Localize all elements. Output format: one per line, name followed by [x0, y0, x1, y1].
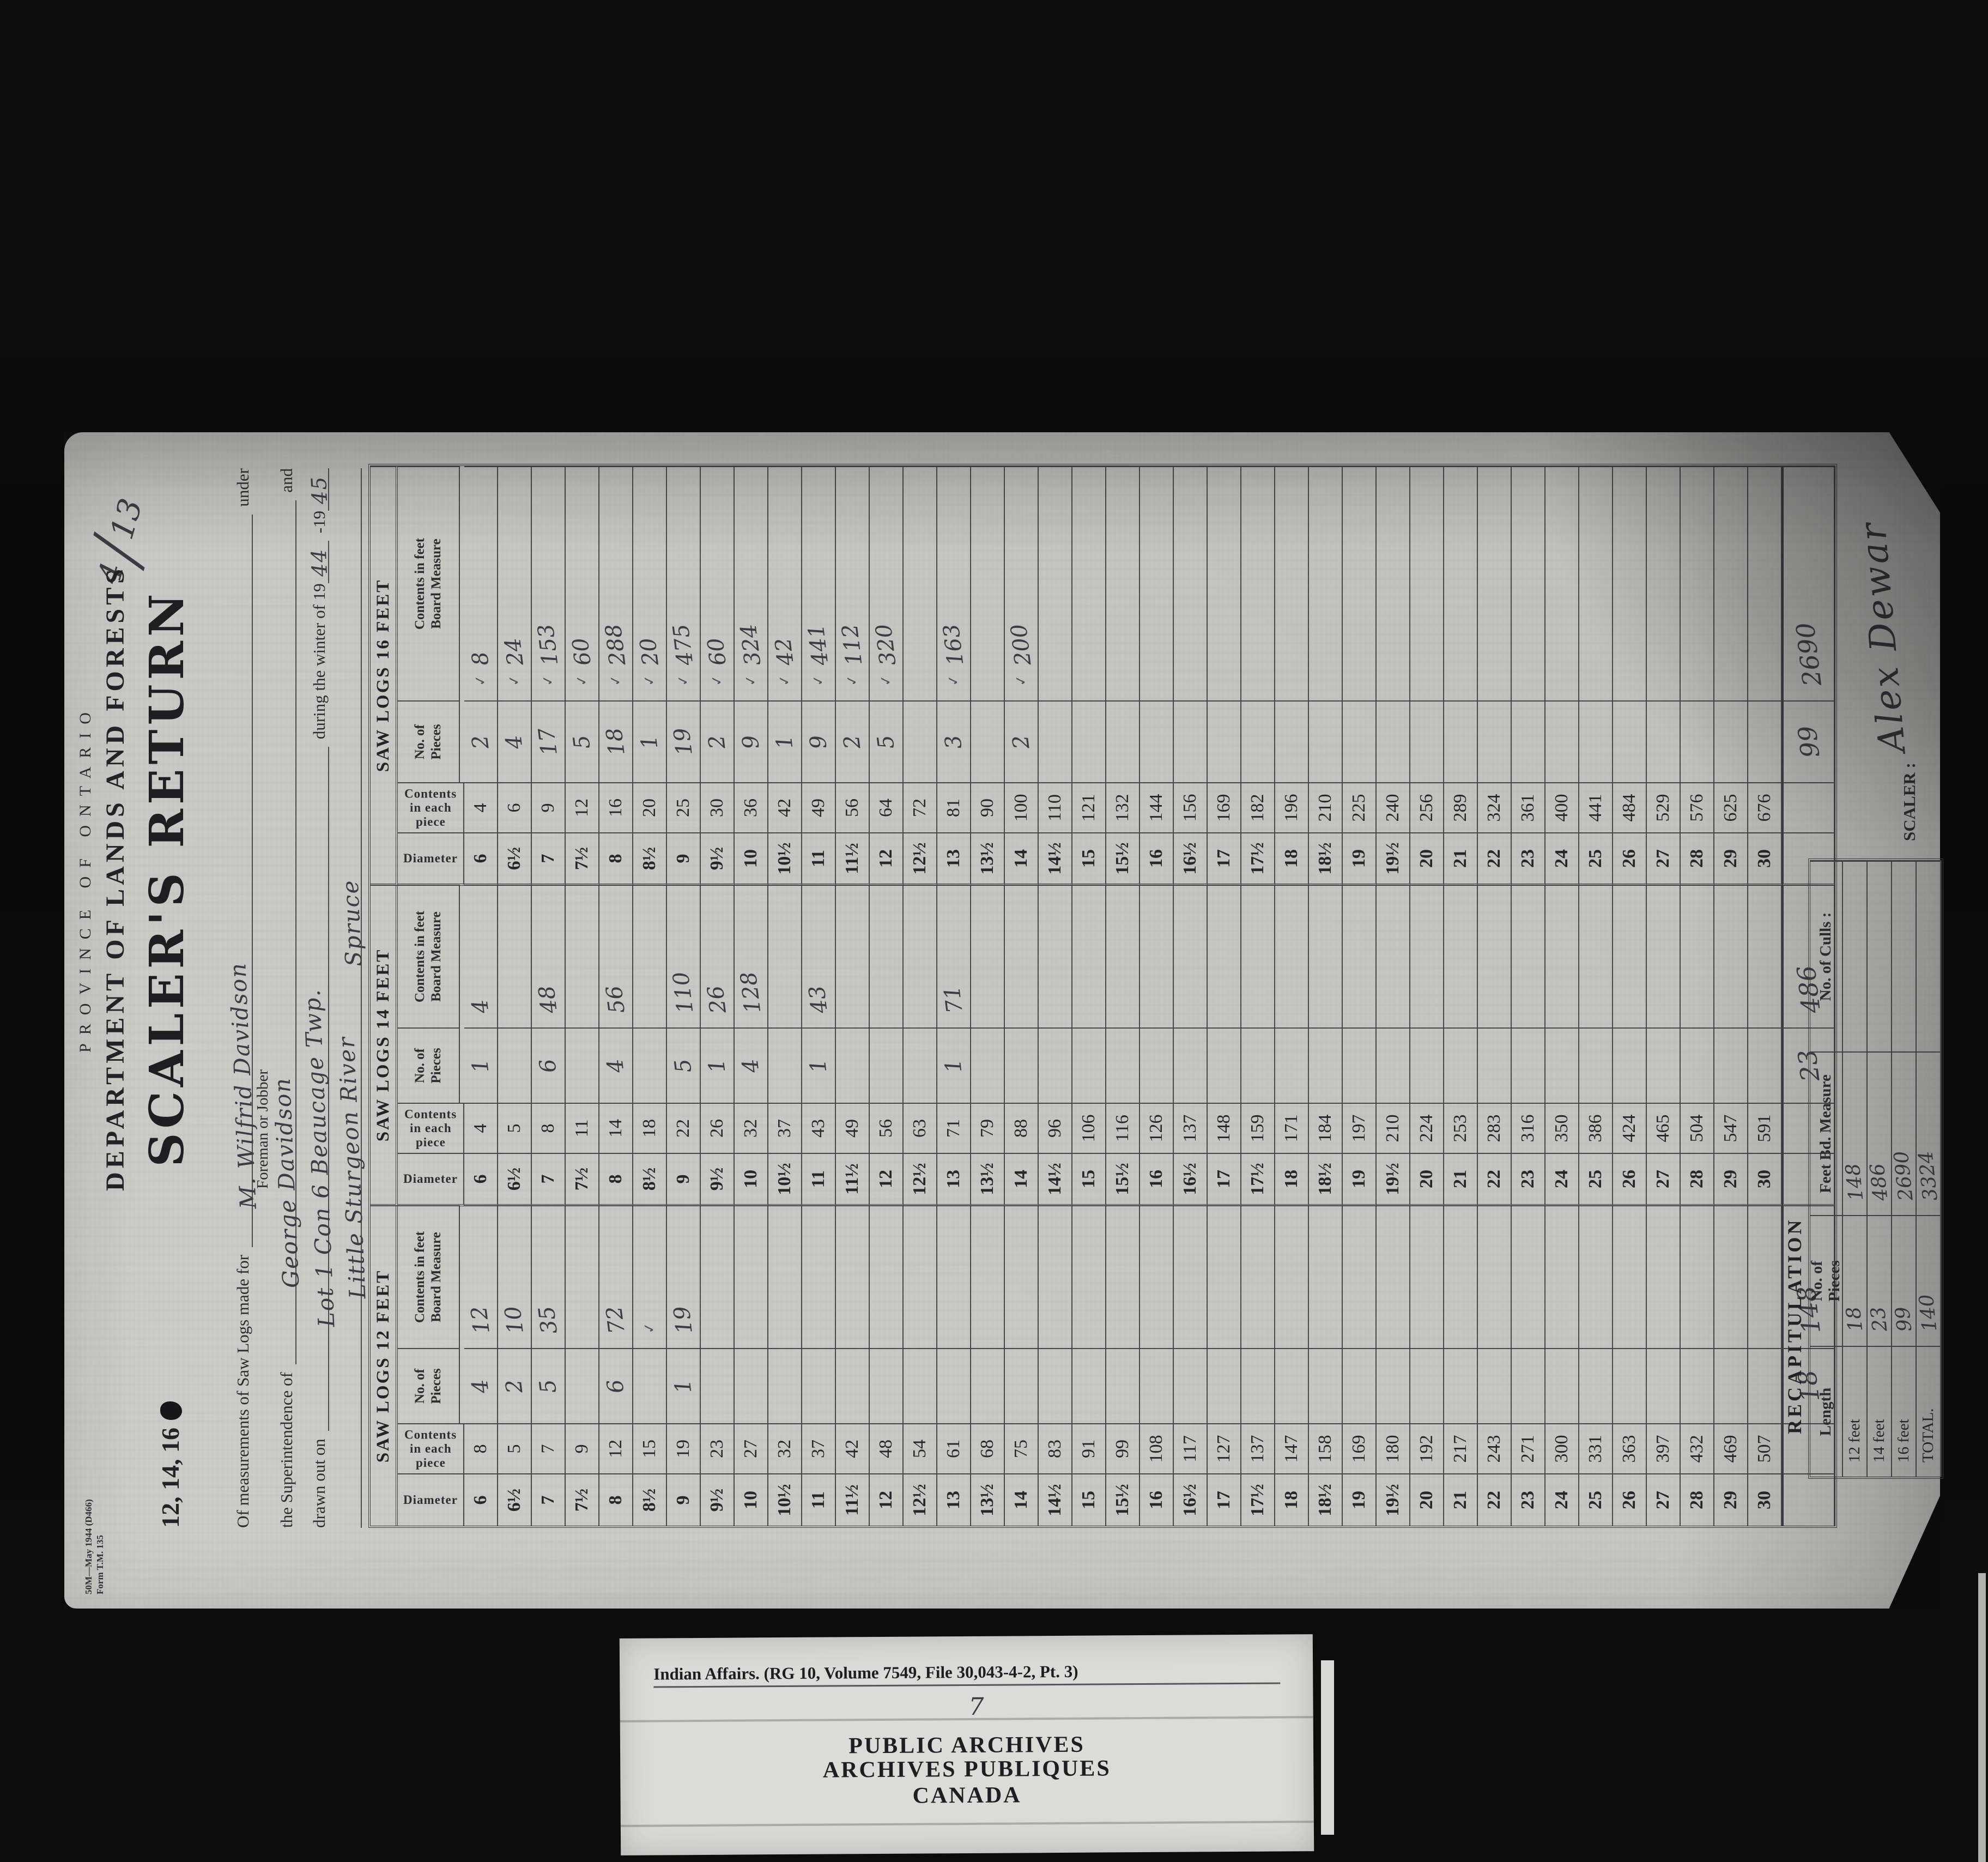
- pieces-cell: [1174, 1027, 1208, 1103]
- diameter-cell: 22: [1478, 832, 1512, 886]
- feet-cell: [1545, 1205, 1579, 1348]
- contents-cell: 11: [566, 1103, 599, 1153]
- diameter-cell: 15½: [1106, 832, 1140, 886]
- diameter-cell: 14: [1005, 1473, 1039, 1526]
- pieces-cell: [1072, 1027, 1106, 1103]
- feet-cell: [1174, 885, 1208, 1027]
- check-mark-icon: ✓: [539, 673, 557, 688]
- diameter-cell: 20: [1410, 832, 1444, 886]
- pieces-cell: 9: [802, 700, 836, 782]
- pieces-cell: [1478, 1027, 1512, 1103]
- contents-cell: 676: [1748, 782, 1782, 832]
- page-title: SCALER'S RETURN: [140, 431, 195, 1325]
- diameter-cell: 20: [1410, 1473, 1444, 1526]
- pieces-cell: [1140, 1027, 1174, 1103]
- diameter-cell: 12½: [904, 1473, 937, 1526]
- diameter-cell: 6: [464, 832, 498, 886]
- pieces-cell: [498, 1027, 532, 1103]
- scaler-return-page: 50M—May 1944 (D466) Form T.M. 135 4 ∕ 13…: [64, 432, 1940, 1609]
- feet-cell: [1106, 466, 1140, 700]
- diameter-cell: 11½: [836, 832, 870, 886]
- contents-cell: 591: [1748, 1103, 1782, 1153]
- diameter-cell: 18½: [1309, 832, 1343, 886]
- col-header-feet: Contents in feetBoard Measure: [398, 885, 460, 1027]
- diameter-cell: 23: [1512, 1153, 1545, 1206]
- diameter-cell: 19½: [1377, 832, 1410, 886]
- contents-cell: 9: [566, 1423, 599, 1473]
- diameter-cell: 22: [1478, 1153, 1512, 1206]
- diameter-cell: 30: [1748, 1473, 1782, 1526]
- pieces-cell: [1309, 700, 1343, 782]
- contents-cell: 9: [532, 782, 566, 832]
- contents-cell: 137: [1241, 1423, 1275, 1473]
- feet-cell: ✓42: [768, 466, 802, 700]
- diameter-cell: 10: [735, 1153, 768, 1206]
- feet-cell: [1140, 466, 1174, 700]
- contents-cell: 49: [836, 1103, 870, 1153]
- feet-cell: [1343, 885, 1377, 1027]
- contents-cell: 400: [1545, 782, 1579, 832]
- feet-cell: [1545, 885, 1579, 1027]
- feet-cell: [836, 1205, 870, 1348]
- pieces-cell: [1512, 700, 1545, 782]
- diameter-cell: 9: [667, 1153, 701, 1206]
- diameter-cell: 23: [1512, 832, 1545, 886]
- feet-cell: ✓20: [633, 466, 667, 700]
- feet-cell: [566, 885, 599, 1027]
- feet-cell: [1579, 466, 1613, 700]
- drawn-out-blank: Lot 1 Con 6 Beaucage Twp.: [295, 747, 329, 1431]
- pieces-cell: [1748, 1348, 1782, 1423]
- contents-cell: 61: [937, 1423, 971, 1473]
- total-pieces: 99: [1782, 700, 1835, 782]
- check-mark-icon: ✓: [471, 673, 489, 688]
- contents-cell: 156: [1174, 782, 1208, 832]
- feet-cell: [1512, 1205, 1545, 1348]
- pieces-cell: [1208, 700, 1241, 782]
- feet-cell: [1072, 885, 1106, 1027]
- feet-cell: [1478, 466, 1512, 700]
- contents-cell: 25: [667, 782, 701, 832]
- diameter-cell: 26: [1613, 1153, 1647, 1206]
- feet-cell: ✓24: [498, 466, 532, 700]
- document-area: 50M—May 1944 (D466) Form T.M. 135 4 ∕ 13…: [64, 432, 1940, 1609]
- pieces-cell: [633, 1348, 667, 1423]
- feet-cell: [870, 1205, 904, 1348]
- feet-cell: [1545, 466, 1579, 700]
- pieces-cell: [836, 1027, 870, 1103]
- feet-cell: [1478, 885, 1512, 1027]
- recap-culls-cell: [1868, 861, 1892, 1051]
- contents-cell: 14: [599, 1103, 633, 1153]
- feet-cell: [904, 885, 937, 1027]
- recap-col-header: No. of Culls :: [1810, 861, 1843, 1051]
- feet-cell: [1039, 1205, 1072, 1348]
- feet-cell: [1444, 885, 1478, 1027]
- feet-cell: [836, 885, 870, 1027]
- feet-cell: [1140, 885, 1174, 1027]
- pieces-cell: 1: [464, 1027, 498, 1103]
- col-header-diameter: Diameter: [398, 1473, 464, 1526]
- pieces-cell: 17: [532, 700, 566, 782]
- diameter-cell: 17: [1208, 832, 1241, 886]
- pieces-cell: [1444, 700, 1478, 782]
- contents-cell: 397: [1647, 1423, 1681, 1473]
- contents-cell: 23: [701, 1423, 735, 1473]
- diameter-cell: 7: [532, 1473, 566, 1526]
- diameter-cell: 14½: [1039, 832, 1072, 886]
- feet-cell: [1275, 1205, 1309, 1348]
- contents-cell: 106: [1072, 1103, 1106, 1153]
- species-blank: Little Sturgeon River Spruce: [328, 468, 362, 1528]
- feet-cell: 35: [532, 1205, 566, 1348]
- pieces-cell: [1647, 1348, 1681, 1423]
- feet-cell: [1343, 1205, 1377, 1348]
- diameter-cell: 20: [1410, 1153, 1444, 1206]
- pieces-cell: [1748, 700, 1782, 782]
- diameter-cell: 18: [1275, 1153, 1309, 1206]
- pieces-cell: [1545, 1348, 1579, 1423]
- diameter-cell: 7½: [566, 1153, 599, 1206]
- pieces-cell: [1613, 1348, 1647, 1423]
- diameter-cell: 9½: [701, 1153, 735, 1206]
- feet-cell: [971, 885, 1005, 1027]
- feet-cell: ✓60: [566, 466, 599, 700]
- contents-cell: 144: [1140, 782, 1174, 832]
- and-label: and: [277, 468, 296, 500]
- feet-cell: [1377, 1205, 1410, 1348]
- label-rule: [620, 1716, 1313, 1722]
- pieces-cell: [1748, 1027, 1782, 1103]
- pieces-cell: [1343, 1027, 1377, 1103]
- feet-cell: [1512, 885, 1545, 1027]
- contents-cell: 42: [768, 782, 802, 832]
- label-rule: [621, 1821, 1314, 1827]
- diameter-cell: 22: [1478, 1473, 1512, 1526]
- section-title: SAW LOGS 16 FEET: [371, 466, 398, 886]
- feet-cell: [1174, 1205, 1208, 1348]
- feet-cell: 26: [701, 885, 735, 1027]
- contents-cell: 5: [498, 1423, 532, 1473]
- feet-cell: 43: [802, 885, 836, 1027]
- recap-culls-cell: [1892, 861, 1917, 1051]
- form-print-code: 50M—May 1944 (D466): [83, 1499, 94, 1594]
- diameter-cell: 14: [1005, 832, 1039, 886]
- feet-cell: [1647, 885, 1681, 1027]
- feet-cell: [1410, 466, 1444, 700]
- pieces-cell: [1039, 700, 1072, 782]
- pieces-cell: 2: [464, 700, 498, 782]
- pieces-cell: [1005, 1027, 1039, 1103]
- pieces-cell: 3: [937, 700, 971, 782]
- pieces-cell: [1241, 1348, 1275, 1423]
- pieces-cell: 5: [532, 1348, 566, 1423]
- pieces-cell: [1410, 1027, 1444, 1103]
- feet-cell: [701, 1205, 735, 1348]
- contents-cell: 225: [1343, 782, 1377, 832]
- contents-cell: 71: [937, 1103, 971, 1153]
- check-mark-icon: ✓: [640, 673, 658, 688]
- feet-cell: ✓324: [735, 466, 768, 700]
- feet-cell: [1005, 1205, 1039, 1348]
- pieces-cell: [1410, 700, 1444, 782]
- total-spacer: [1782, 782, 1835, 832]
- contents-cell: 224: [1410, 1103, 1444, 1153]
- contents-cell: 99: [1106, 1423, 1140, 1473]
- made-for-blank: M. Wilfrid Davidson: [221, 515, 253, 1247]
- contents-cell: 289: [1444, 782, 1478, 832]
- check-mark-icon: ✓: [775, 673, 793, 688]
- archive-label: Indian Affairs. (RG 10, Volume 7549, Fil…: [620, 1634, 1314, 1855]
- contents-cell: 171: [1275, 1103, 1309, 1153]
- feet-cell: [1681, 466, 1714, 700]
- diameter-cell: 10: [735, 832, 768, 886]
- contents-cell: 5: [498, 1103, 532, 1153]
- pieces-cell: 2: [701, 700, 735, 782]
- feet-cell: [1241, 466, 1275, 700]
- contents-cell: 6: [498, 782, 532, 832]
- ink-blot: [160, 1401, 182, 1420]
- feet-cell: 10: [498, 1205, 532, 1348]
- pieces-cell: [904, 700, 937, 782]
- diameter-cell: 10½: [768, 1153, 802, 1206]
- contents-cell: 180: [1377, 1423, 1410, 1473]
- feet-cell: [1681, 1205, 1714, 1348]
- pieces-cell: [1343, 1348, 1377, 1423]
- contents-cell: 116: [1106, 1103, 1140, 1153]
- pieces-cell: [904, 1027, 937, 1103]
- contents-cell: 68: [971, 1423, 1005, 1473]
- diameter-cell: 13: [937, 1153, 971, 1206]
- recap-feet-cell: 486: [1868, 1051, 1892, 1215]
- contents-cell: 75: [1005, 1423, 1039, 1473]
- pieces-cell: 1: [802, 1027, 836, 1103]
- film-frame-fragment: [1321, 1660, 1334, 1835]
- feet-cell: ✓8: [464, 466, 498, 700]
- pieces-cell: [802, 1348, 836, 1423]
- section-title: SAW LOGS 12 FEET: [371, 1205, 398, 1526]
- diameter-cell: 12: [870, 1473, 904, 1526]
- pieces-cell: [1208, 1348, 1241, 1423]
- archive-reference-line: Indian Affairs. (RG 10, Volume 7549, Fil…: [653, 1660, 1280, 1688]
- pieces-cell: 4: [599, 1027, 633, 1103]
- diameter-cell: 10: [735, 1473, 768, 1526]
- pieces-cell: [1613, 1027, 1647, 1103]
- feet-cell: [1174, 466, 1208, 700]
- feet-cell: [904, 466, 937, 700]
- title-province: PROVINCE OF ONTARIO: [76, 431, 95, 1325]
- feet-cell: [1241, 885, 1275, 1027]
- diameter-cell: 8½: [633, 1473, 667, 1526]
- diameter-cell: 11: [802, 1153, 836, 1206]
- feet-cell: ✓163: [937, 466, 971, 700]
- col-header-feet: Contents in feetBoard Measure: [398, 1205, 460, 1348]
- diameter-cell: 17½: [1241, 832, 1275, 886]
- diameter-cell: 24: [1545, 832, 1579, 886]
- contents-cell: 331: [1579, 1423, 1613, 1473]
- contents-cell: 243: [1478, 1423, 1512, 1473]
- pieces-cell: [566, 1348, 599, 1423]
- contents-cell: 7: [532, 1423, 566, 1473]
- recap-length-cell: TOTAL.: [1917, 1346, 1941, 1477]
- diameter-cell: 12½: [904, 1153, 937, 1206]
- feet-cell: [802, 1205, 836, 1348]
- diameter-cell: 19: [1343, 1473, 1377, 1526]
- feet-cell: 72: [599, 1205, 633, 1348]
- section-title: SAW LOGS 14 FEET: [371, 885, 398, 1206]
- feet-cell: [633, 885, 667, 1027]
- col-header-feet: Contents in feetBoard Measure: [398, 466, 460, 700]
- contents-cell: 148: [1208, 1103, 1241, 1153]
- contents-cell: 32: [768, 1423, 802, 1473]
- contents-cell: 210: [1309, 782, 1343, 832]
- log-lengths-label: 12, 14, 16: [156, 1401, 185, 1528]
- recap-length-cell: 14 feet: [1868, 1346, 1892, 1477]
- made-for-line: Of measurements of Saw Logs made for M. …: [222, 468, 253, 1528]
- superintendence-line: the Superintendence of George Davidson a…: [266, 468, 296, 1528]
- col-header-pieces: No. ofPieces: [398, 1348, 460, 1423]
- contents-cell: 110: [1039, 782, 1072, 832]
- pieces-cell: [1444, 1027, 1478, 1103]
- contents-cell: 126: [1140, 1103, 1174, 1153]
- contents-cell: 4: [464, 782, 498, 832]
- contents-cell: 547: [1714, 1103, 1748, 1153]
- diameter-cell: 9½: [701, 832, 735, 886]
- pieces-cell: [971, 700, 1005, 782]
- contents-cell: 465: [1647, 1103, 1681, 1153]
- diameter-cell: 18½: [1309, 1473, 1343, 1526]
- diameter-cell: 11: [802, 1473, 836, 1526]
- diameter-cell: 6½: [498, 832, 532, 886]
- diameter-cell: 18: [1275, 1473, 1309, 1526]
- feet-cell: [1140, 1205, 1174, 1348]
- feet-cell: ✓441: [802, 466, 836, 700]
- diameter-cell: 8: [599, 832, 633, 886]
- pieces-cell: 18: [599, 700, 633, 782]
- diameter-cell: 12: [870, 832, 904, 886]
- feet-cell: [1005, 885, 1039, 1027]
- feet-cell: [904, 1205, 937, 1348]
- col-header-contents: Contents in each piece: [398, 1423, 464, 1473]
- contents-cell: 300: [1545, 1423, 1579, 1473]
- contents-cell: 350: [1545, 1103, 1579, 1153]
- feet-cell: [1748, 466, 1782, 700]
- contents-cell: 256: [1410, 782, 1444, 832]
- feet-cell: [1309, 885, 1343, 1027]
- diameter-cell: 17½: [1241, 1473, 1275, 1526]
- contents-cell: 16: [599, 782, 633, 832]
- contents-cell: 386: [1579, 1103, 1613, 1153]
- diameter-cell: 17½: [1241, 1153, 1275, 1206]
- contents-cell: 217: [1444, 1423, 1478, 1473]
- feet-cell: [1714, 885, 1748, 1027]
- diameter-cell: 18½: [1309, 1153, 1343, 1206]
- pieces-cell: [1208, 1027, 1241, 1103]
- diameter-cell: 26: [1613, 832, 1647, 886]
- pieces-cell: [768, 1348, 802, 1423]
- feet-cell: [1377, 885, 1410, 1027]
- diameter-cell: 6½: [498, 1153, 532, 1206]
- form-number: 50M—May 1944 (D466) Form T.M. 135: [83, 1499, 106, 1594]
- pieces-cell: 2: [1005, 700, 1039, 782]
- feet-cell: 4: [464, 885, 498, 1027]
- feet-cell: [735, 1205, 768, 1348]
- contents-cell: 529: [1647, 782, 1681, 832]
- superintendence-label: the Superintendence of: [277, 1364, 296, 1528]
- year1-blank: 44: [295, 541, 329, 583]
- feet-cell: [1208, 466, 1241, 700]
- contents-cell: 210: [1377, 1103, 1410, 1153]
- scaler-signature: Alex Dewar: [1852, 519, 1914, 754]
- recap-pieces-cell: 99: [1892, 1215, 1917, 1346]
- diameter-cell: 13½: [971, 1153, 1005, 1206]
- contents-cell: 147: [1275, 1423, 1309, 1473]
- feet-cell: [1072, 1205, 1106, 1348]
- pieces-cell: [1681, 1348, 1714, 1423]
- contents-cell: 63: [904, 1103, 937, 1153]
- contents-cell: 469: [1714, 1423, 1748, 1473]
- recap-col-header: Length: [1810, 1346, 1843, 1477]
- pieces-cell: 2: [498, 1348, 532, 1423]
- diameter-cell: 14: [1005, 1153, 1039, 1206]
- pieces-cell: [1714, 700, 1748, 782]
- contents-cell: 12: [599, 1423, 633, 1473]
- contents-cell: 27: [735, 1423, 768, 1473]
- film-edge-sliver: [1978, 1573, 1986, 1862]
- pieces-cell: [1579, 1027, 1613, 1103]
- diameter-cell: 10½: [768, 1473, 802, 1526]
- contents-cell: 37: [802, 1423, 836, 1473]
- pieces-cell: 1: [633, 700, 667, 782]
- river-value: Little Sturgeon River: [334, 1036, 371, 1299]
- feet-cell: ✓112: [836, 466, 870, 700]
- pieces-cell: [1140, 700, 1174, 782]
- feet-cell: [1039, 466, 1072, 700]
- feet-cell: [1512, 466, 1545, 700]
- contents-cell: 4: [464, 1103, 498, 1153]
- contents-cell: 91: [1072, 1423, 1106, 1473]
- form-header-lines: Of measurements of Saw Logs made for M. …: [222, 468, 362, 1528]
- torn-corner-left: [1889, 1495, 1941, 1609]
- contents-cell: 192: [1410, 1423, 1444, 1473]
- contents-cell: 507: [1748, 1423, 1782, 1473]
- scaler-label: SCALER :: [1900, 763, 1919, 841]
- col-header-diameter: Diameter: [398, 832, 464, 886]
- feet-cell: [498, 885, 532, 1027]
- contents-cell: 240: [1377, 782, 1410, 832]
- contents-cell: 15: [633, 1423, 667, 1473]
- contents-cell: 197: [1343, 1103, 1377, 1153]
- diameter-cell: 29: [1714, 1153, 1748, 1206]
- check-mark-icon: ✓: [674, 673, 692, 688]
- winter-label: during the winter of 19: [310, 583, 329, 747]
- pieces-cell: [633, 1027, 667, 1103]
- feet-cell: [1613, 466, 1647, 700]
- contents-cell: 32: [735, 1103, 768, 1153]
- pieces-cell: [1309, 1027, 1343, 1103]
- pieces-cell: [836, 1348, 870, 1423]
- col-header-pieces: No. ofPieces: [398, 1027, 460, 1103]
- pieces-cell: [1545, 700, 1579, 782]
- contents-cell: 184: [1309, 1103, 1343, 1153]
- diameter-cell: 27: [1647, 832, 1681, 886]
- pieces-cell: [870, 1027, 904, 1103]
- feet-cell: [1106, 1205, 1140, 1348]
- feet-cell: [1444, 1205, 1478, 1348]
- contents-cell: 42: [836, 1423, 870, 1473]
- pieces-cell: 19: [667, 700, 701, 782]
- pieces-cell: [1579, 700, 1613, 782]
